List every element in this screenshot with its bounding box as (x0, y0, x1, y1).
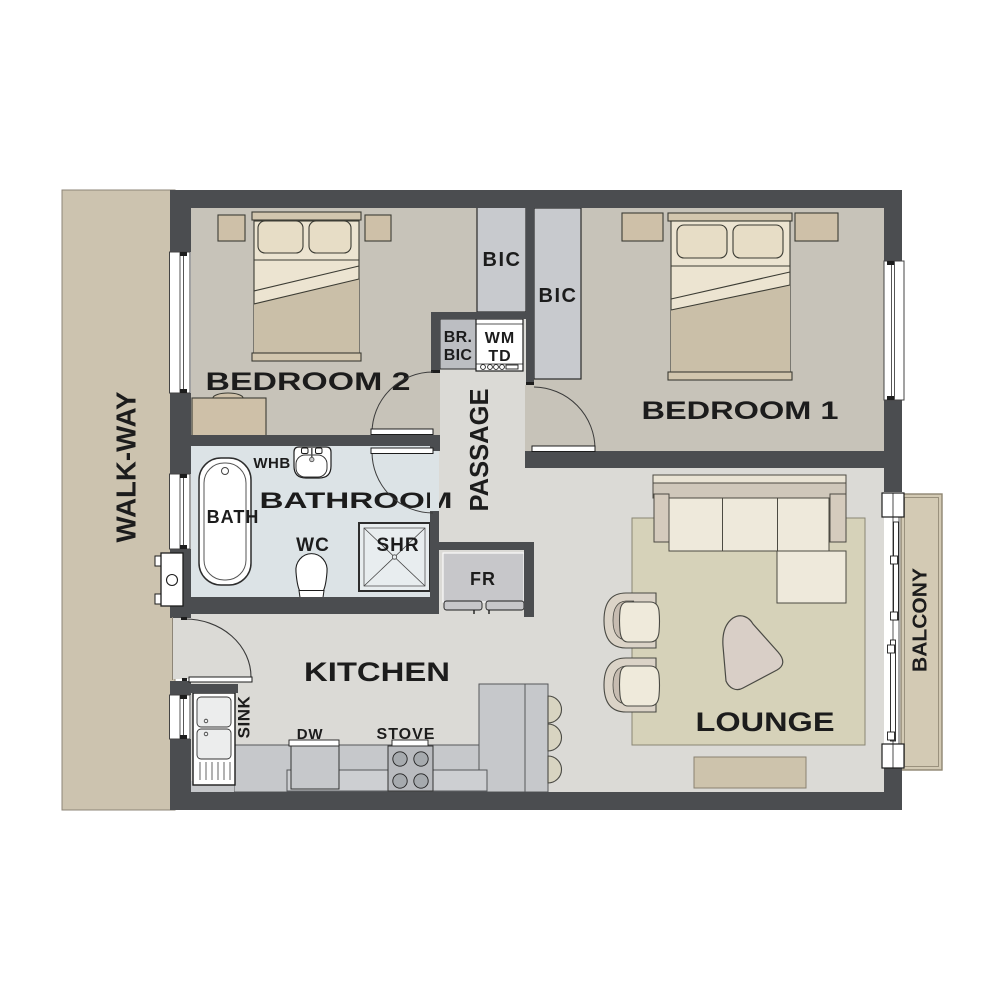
svg-text:BEDROOM 1: BEDROOM 1 (642, 397, 839, 425)
svg-text:WC: WC (296, 535, 330, 556)
svg-text:LOUNGE: LOUNGE (696, 707, 835, 737)
svg-text:FR: FR (470, 569, 496, 589)
svg-text:WHB: WHB (253, 455, 290, 472)
svg-text:STOVE: STOVE (377, 726, 436, 743)
svg-text:BEDROOM 2: BEDROOM 2 (206, 368, 411, 396)
svg-text:WM: WM (485, 330, 515, 347)
svg-text:BALCONY: BALCONY (909, 567, 931, 672)
svg-text:BIC: BIC (483, 249, 522, 271)
svg-text:BATH: BATH (207, 507, 260, 527)
svg-text:SINK: SINK (234, 695, 253, 738)
svg-text:WALK-WAY: WALK-WAY (110, 391, 141, 542)
svg-text:TD: TD (488, 348, 511, 365)
svg-text:BATHROOM: BATHROOM (260, 488, 453, 513)
svg-text:BIC: BIC (539, 285, 578, 307)
svg-text:SHR: SHR (376, 535, 419, 556)
svg-text:BR.: BR. (444, 329, 472, 346)
svg-text:BIC: BIC (444, 347, 473, 364)
svg-text:PASSAGE: PASSAGE (464, 389, 494, 512)
svg-text:KITCHEN: KITCHEN (304, 657, 450, 687)
svg-text:DW: DW (297, 726, 324, 743)
